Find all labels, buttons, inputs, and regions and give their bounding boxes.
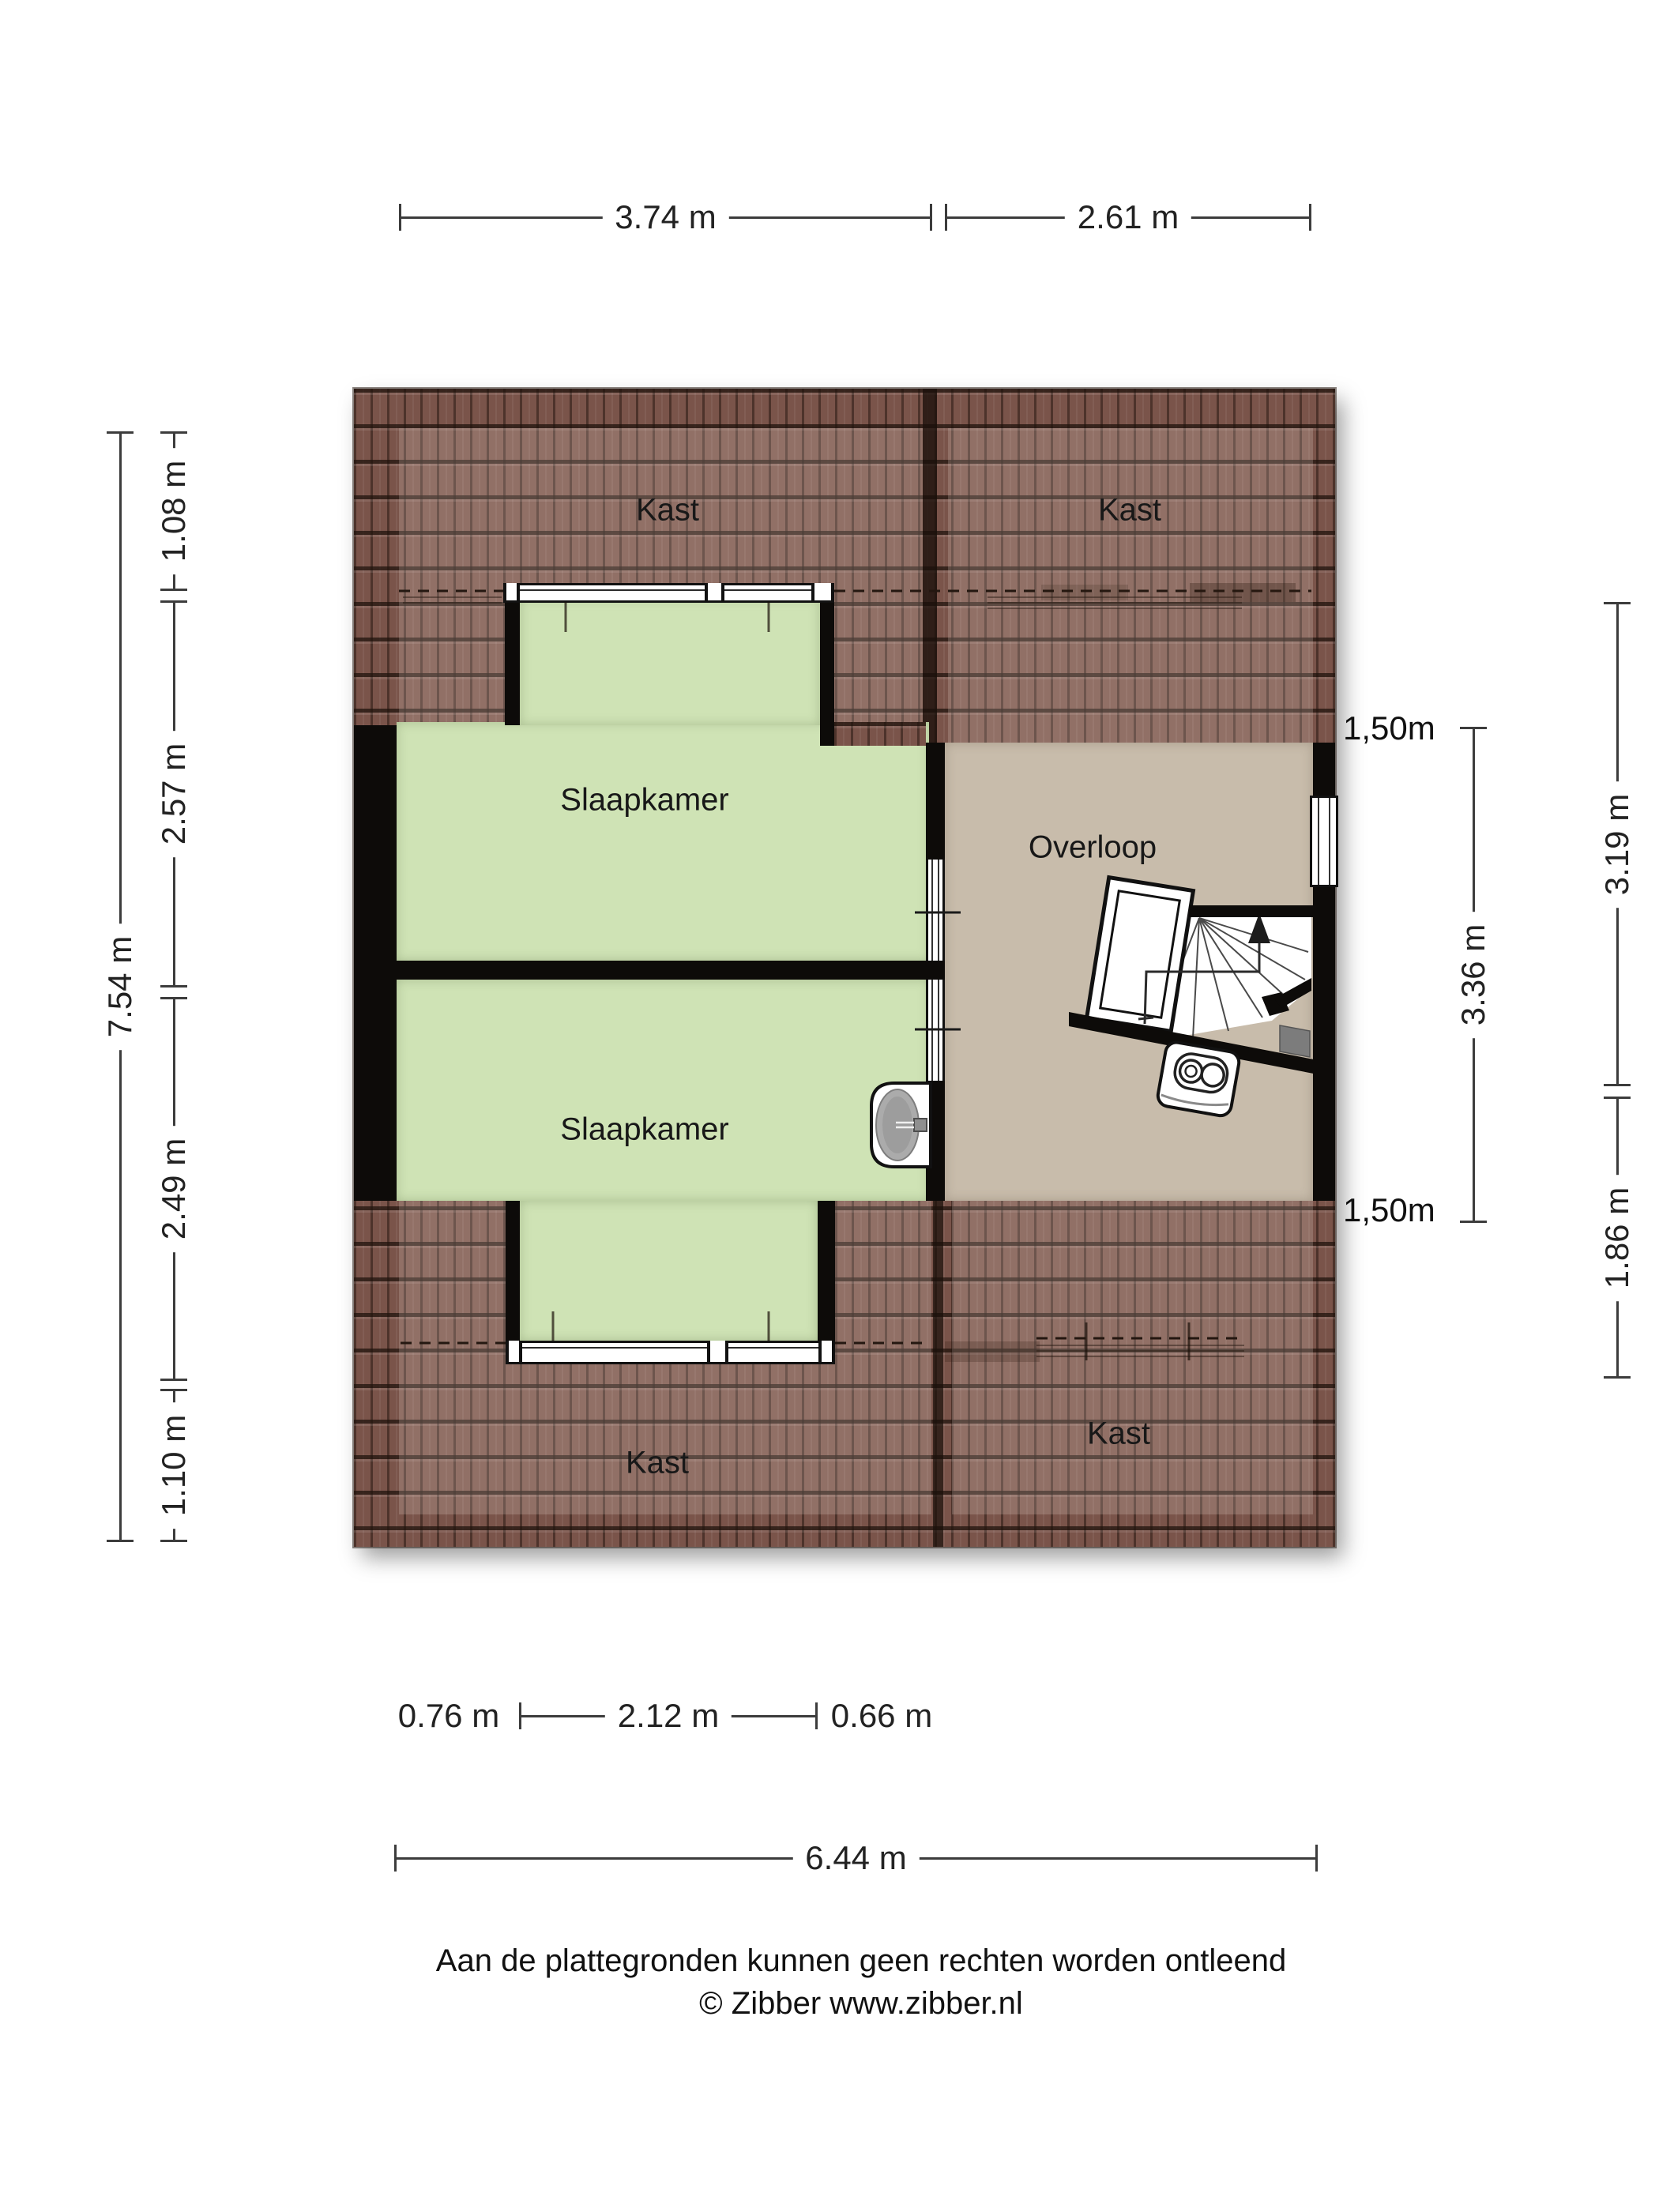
dim-top-right: 2.61 m [945, 204, 1311, 231]
dim-bottom-left-text: 0.76 m [398, 1697, 499, 1735]
dim-bottom-window: 2.12 m [519, 1702, 818, 1729]
room-label-overloop: Overloop [1029, 830, 1157, 866]
dim-left-seg-2: 2.57 m [160, 600, 187, 987]
boiler-icon [1157, 1040, 1241, 1117]
dim-bottom-right-text: 0.66 m [831, 1697, 932, 1735]
dim-right-inner: 3.36 m [1460, 727, 1487, 1223]
copyright-text: © Zibber www.zibber.nl [63, 1986, 1659, 2022]
floor-plan [354, 389, 1335, 1547]
room-label-kast-top-right: Kast [1098, 493, 1161, 529]
dim-left-seg-3: 2.49 m [160, 997, 187, 1381]
stairs-and-fixtures [354, 389, 1335, 1547]
room-label-kast-top-left: Kast [636, 493, 699, 529]
knee-wall-label-top: 1,50m [1343, 709, 1435, 747]
dim-bottom-total: 6.44 m [394, 1845, 1318, 1872]
sink-icon [871, 1083, 931, 1167]
room-label-kast-bottom-right: Kast [1087, 1416, 1150, 1452]
dim-right-seg-1: 3.19 m [1604, 602, 1631, 1086]
room-label-slaapkamer-top: Slaapkamer [560, 783, 728, 818]
dim-right-seg-2: 1.86 m [1604, 1097, 1631, 1379]
room-label-kast-bottom-left: Kast [626, 1446, 689, 1481]
disclaimer-text: Aan de plattegronden kunnen geen rechten… [63, 1943, 1659, 1979]
knee-wall-label-bottom: 1,50m [1343, 1191, 1435, 1229]
floorplan-page: Kast Kast Slaapkamer Overloop Slaapkamer… [0, 0, 1659, 2212]
dim-left-seg-1: 1.08 m [160, 431, 187, 591]
room-label-slaapkamer-bottom: Slaapkamer [560, 1112, 728, 1148]
dim-left-seg-4: 1.10 m [160, 1389, 187, 1542]
dim-left-total: 7.54 m [107, 431, 134, 1542]
dim-top-left: 3.74 m [399, 204, 932, 231]
